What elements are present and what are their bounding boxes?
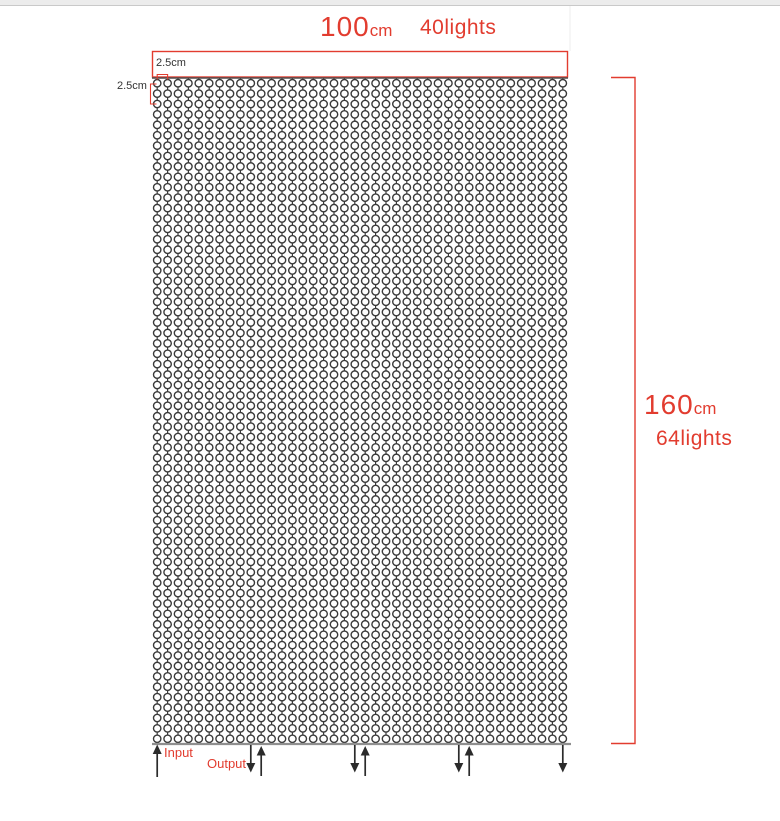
input-label: Input: [164, 746, 193, 760]
return-up-arrow: [257, 746, 266, 776]
led-string-column: [206, 78, 213, 744]
width-dimension-label: 100cm: [320, 12, 392, 43]
led-string-column: [528, 78, 535, 744]
led-string-column: [237, 78, 244, 744]
led-string-column: [393, 78, 400, 744]
input-arrow: [153, 745, 162, 778]
row-spacing-label: 2.5cm: [117, 80, 147, 92]
led-string-column: [414, 78, 421, 744]
led-string-column: [497, 78, 504, 744]
led-string-column: [341, 78, 348, 744]
width-dimension-frame: [153, 52, 568, 78]
led-string-column: [320, 78, 327, 744]
led-string-column: [486, 78, 493, 744]
return-up-arrow: [361, 746, 370, 776]
width-lights-label: 40lights: [420, 16, 496, 39]
led-string-column: [268, 78, 275, 744]
led-string-column: [382, 78, 389, 744]
width-unit: cm: [370, 21, 393, 40]
height-unit: cm: [694, 399, 717, 418]
led-string-column: [195, 78, 202, 744]
led-string-column: [258, 78, 265, 744]
column-spacing-label: 2.5cm: [156, 57, 186, 69]
led-string-column: [362, 78, 369, 744]
led-string-column: [216, 78, 223, 744]
led-string-column: [164, 78, 171, 744]
height-lights-label: 64lights: [656, 427, 732, 450]
led-string-column: [289, 78, 296, 744]
led-string-column: [455, 78, 462, 744]
output-down-arrow: [246, 745, 255, 773]
led-string-column: [424, 78, 431, 744]
output-down-arrow: [454, 745, 463, 773]
led-string-column: [372, 78, 379, 744]
led-string-column: [174, 78, 181, 744]
led-string-column: [330, 78, 337, 744]
led-string-column: [154, 78, 161, 744]
height-dimension-label: 160cm: [644, 390, 716, 421]
output-down-arrow: [350, 745, 359, 773]
led-string-column: [247, 78, 254, 744]
height-dimension-bracket: [611, 78, 635, 744]
led-string-column: [466, 78, 473, 744]
led-string-column: [507, 78, 514, 744]
led-string-column: [310, 78, 317, 744]
led-string-column: [403, 78, 410, 744]
output-down-arrow: [558, 745, 567, 773]
led-curtain-spec-diagram: 100cm 40lights 2.5cm 2.5cm 160cm 64light…: [0, 0, 780, 821]
led-string-column: [351, 78, 358, 744]
width-value: 100: [320, 11, 370, 42]
led-string-column: [226, 78, 233, 744]
height-value: 160: [644, 389, 694, 420]
return-up-arrow: [465, 746, 474, 776]
led-string-column: [476, 78, 483, 744]
led-string-column: [185, 78, 192, 744]
led-string-column: [278, 78, 285, 744]
led-string-column: [299, 78, 306, 744]
output-label: Output: [207, 757, 246, 771]
led-string-column: [434, 78, 441, 744]
led-string-column: [445, 78, 452, 744]
led-string-column: [559, 78, 566, 744]
led-string-column: [518, 78, 525, 744]
led-string-column: [549, 78, 556, 744]
led-string-column: [538, 78, 545, 744]
